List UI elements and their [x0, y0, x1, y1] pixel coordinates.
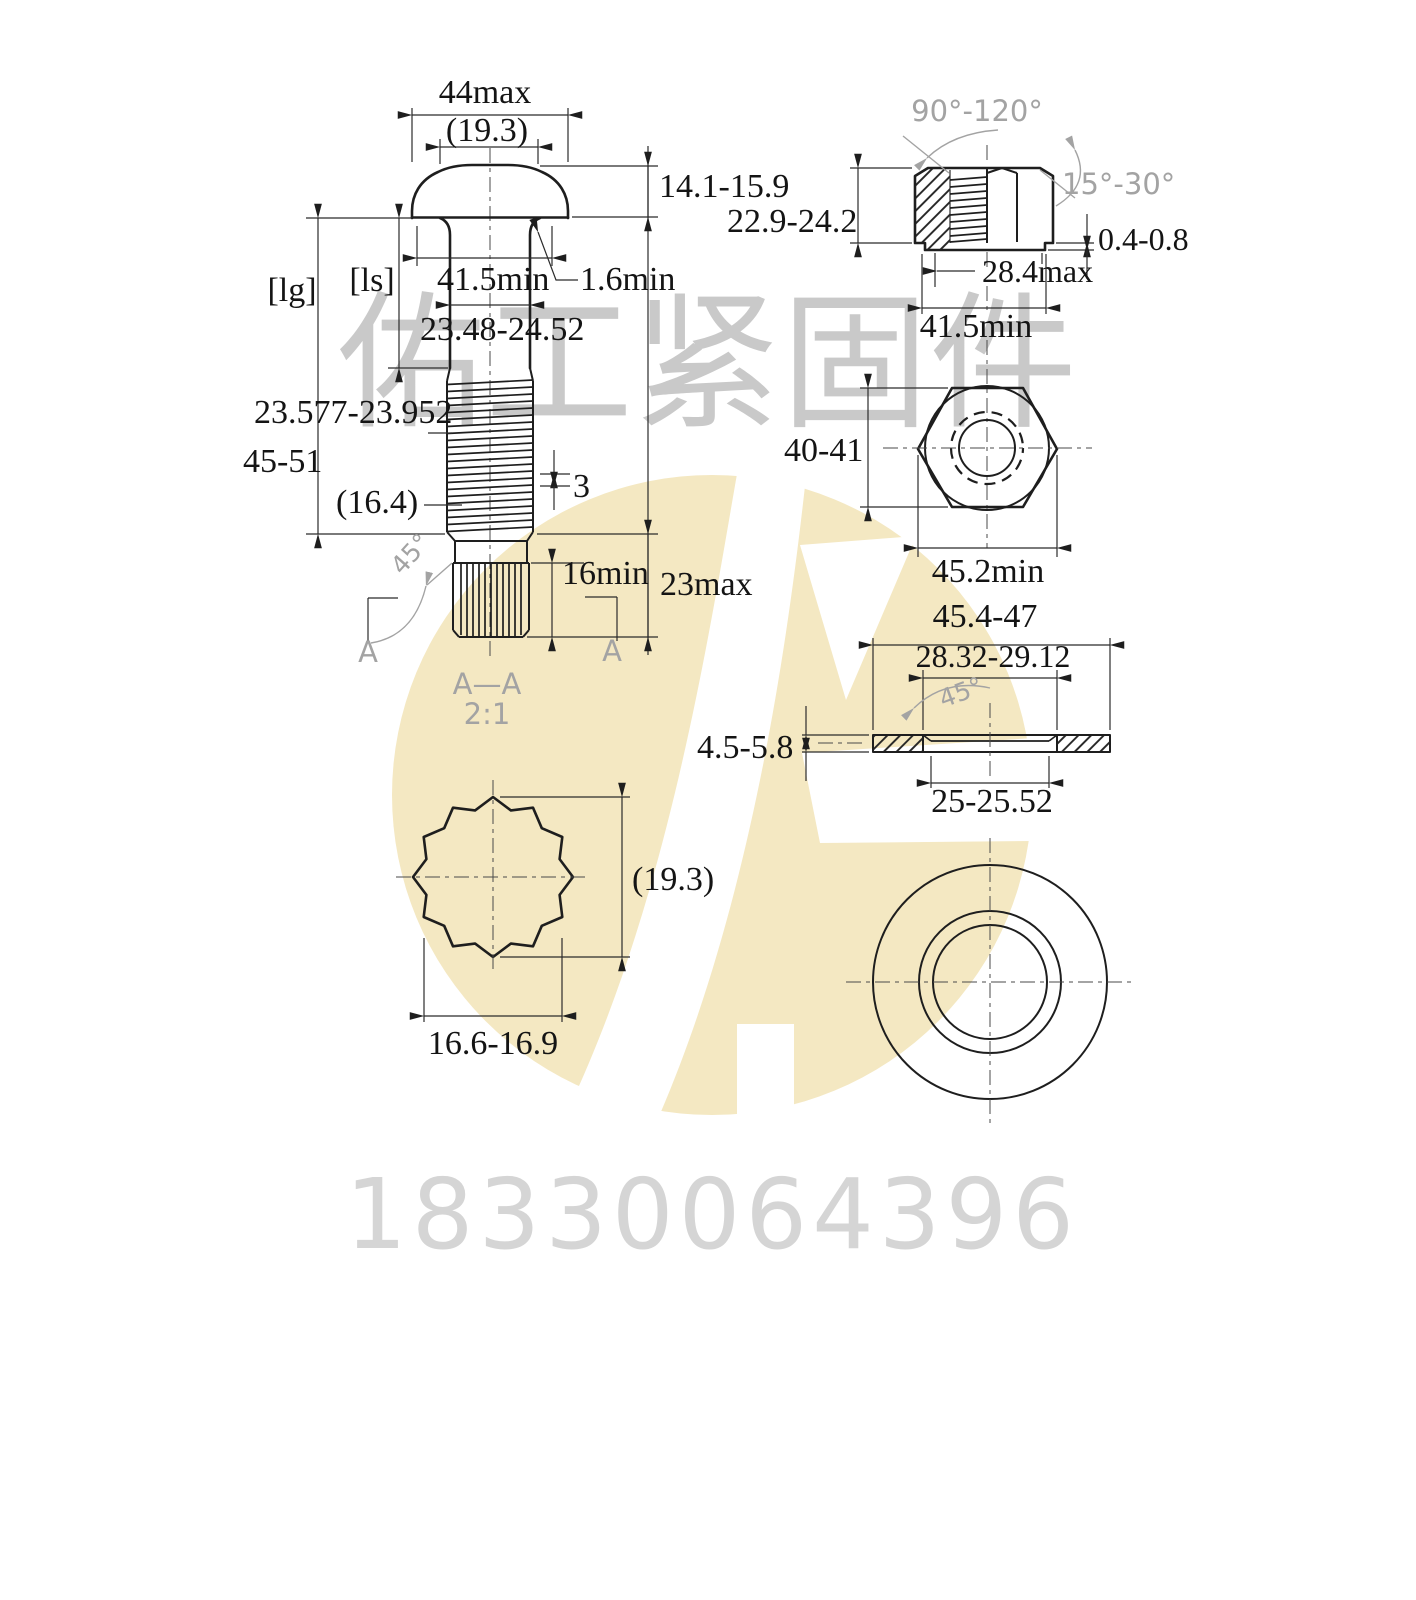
dim-washer-face-dia: 28.4max [982, 253, 1093, 289]
dim-minor-ref: (16.4) [336, 484, 418, 521]
dim-head-dia: 44max [439, 74, 532, 111]
dim-washer-chamfer-dia: 28.32-29.12 [916, 638, 1071, 674]
nut-thread-lines [950, 177, 987, 242]
phone-watermark-text: 18330064396 [345, 1158, 1079, 1271]
dim-tip-length: 23max [660, 566, 753, 603]
dim-across-flats: 40-41 [784, 432, 863, 469]
dim-across-corners: 45.2min [932, 553, 1044, 590]
dim-washer-outer-dia: 45.4-47 [933, 598, 1038, 635]
dim-spline-length: 16min [562, 555, 649, 592]
dim-thread-dia: 23.577-23.952 [254, 394, 452, 431]
section-mark-left: A [358, 635, 378, 669]
dim-head-height: 14.1-15.9 [659, 168, 789, 205]
dim-washer-hole-dia: 25-25.52 [931, 783, 1053, 820]
dim-section-major-dia: (19.3) [632, 861, 714, 898]
dim-nut-height: 22.9-24.2 [727, 203, 857, 240]
dim-fillet: 1.6min [580, 261, 675, 298]
angle-countersink: 90°-120° [911, 94, 1043, 128]
dim-head-top-dia: (19.3) [446, 112, 528, 149]
section-mark-right: A [602, 634, 622, 668]
ref-ls: [ls] [349, 262, 394, 299]
ref-lg: [lg] [267, 272, 316, 309]
engineering-drawing-page: 佑工紧固件 18330064396 [0, 0, 1416, 1600]
angle-spline: 45° [385, 528, 436, 580]
section-title: A—A [453, 667, 522, 701]
drawing-canvas: 佑工紧固件 18330064396 [0, 0, 1416, 1600]
dim-shank-dia: 23.48-24.52 [420, 311, 584, 348]
angle-chamfer: 15°-30° [1062, 167, 1175, 201]
section-scale: 2:1 [464, 697, 511, 731]
dim-washer-face-height: 0.4-0.8 [1098, 221, 1189, 257]
dim-thread-length: 45-51 [243, 443, 322, 480]
dim-section-across-flats: 16.6-16.9 [428, 1025, 558, 1062]
dim-nut-bearing-dia: 41.5min [920, 308, 1032, 345]
dim-washer-thickness: 4.5-5.8 [697, 729, 793, 766]
dim-pitch: 3 [573, 468, 590, 505]
dim-bearing-dia: 41.5min [437, 261, 549, 298]
